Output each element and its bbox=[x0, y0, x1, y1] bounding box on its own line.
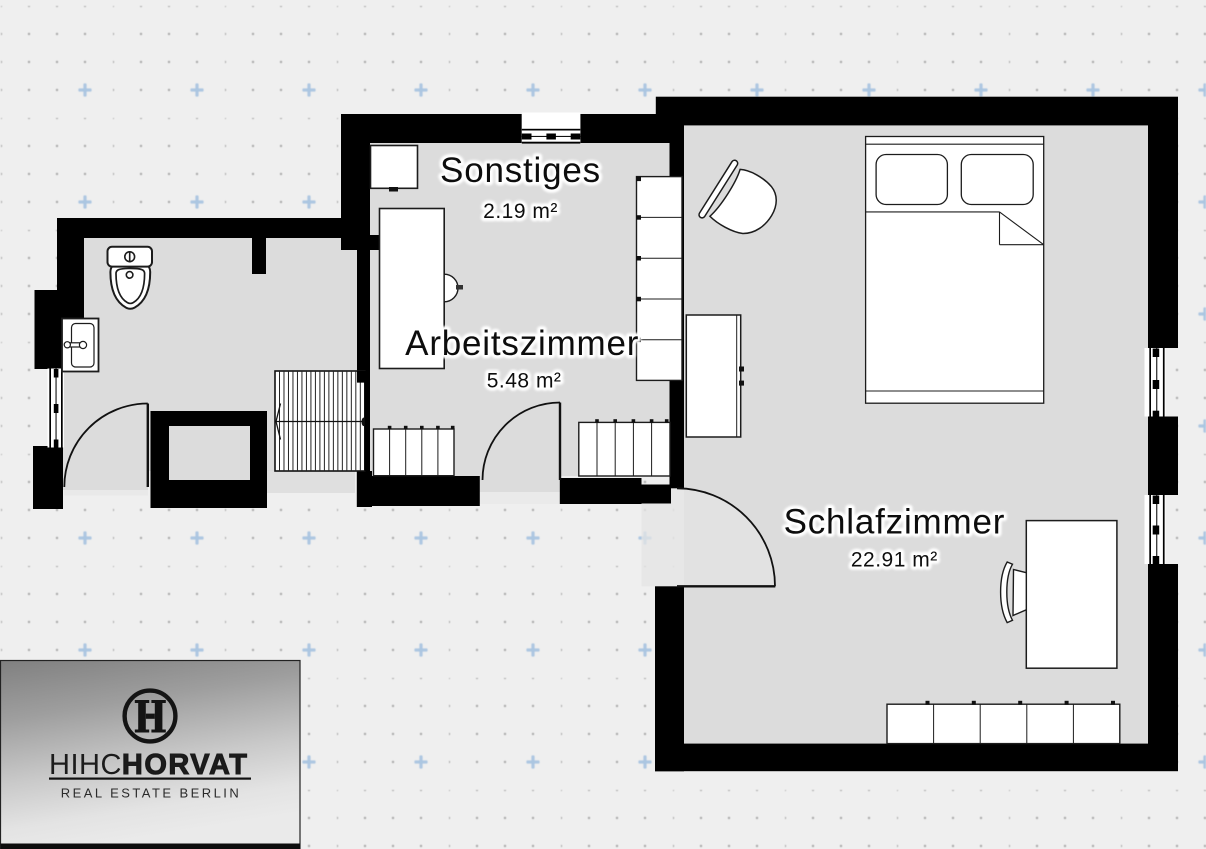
svg-text:Sonstiges: Sonstiges bbox=[440, 151, 601, 190]
svg-text:Schlafzimmer: Schlafzimmer bbox=[784, 502, 1006, 541]
svg-text:2.19 m²: 2.19 m² bbox=[483, 200, 558, 223]
svg-text:Arbeitszimmer: Arbeitszimmer bbox=[405, 324, 639, 363]
svg-text:HIHCHORVAT: HIHCHORVAT bbox=[49, 749, 249, 781]
svg-text:22.91 m²: 22.91 m² bbox=[851, 549, 938, 572]
svg-text:5.48 m²: 5.48 m² bbox=[487, 369, 562, 392]
svg-text:REAL ESTATE BERLIN: REAL ESTATE BERLIN bbox=[61, 786, 241, 801]
